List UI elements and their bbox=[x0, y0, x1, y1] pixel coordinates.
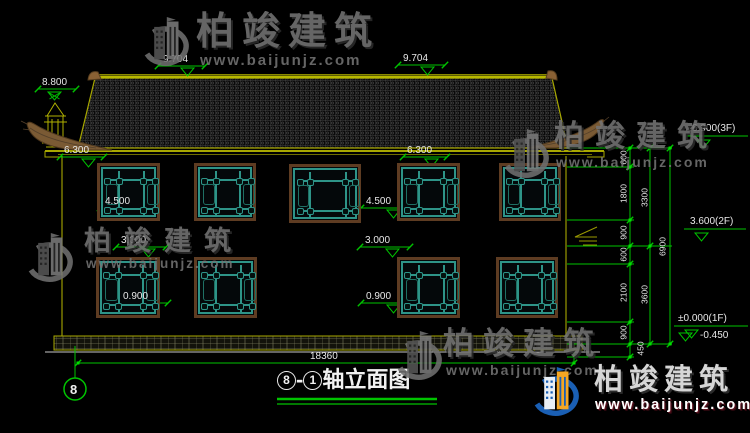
dim-node bbox=[629, 356, 632, 359]
watermark-bottom-right: 柏竣建筑 www.baijunjz.com bbox=[528, 364, 750, 413]
lattice-bar bbox=[105, 208, 156, 210]
lattice-rosette bbox=[440, 272, 447, 279]
elevation-label-sill_2f: 4.500 bbox=[105, 197, 130, 207]
lattice-rosette bbox=[503, 303, 510, 310]
lattice-rosette bbox=[116, 207, 123, 214]
lattice-panel bbox=[147, 184, 159, 205]
lattice-rosette bbox=[115, 272, 122, 279]
window-lattice bbox=[401, 167, 456, 217]
lattice-rosette bbox=[541, 207, 548, 214]
watermark-site: www.baijunjz.com bbox=[595, 397, 750, 413]
lattice-rosette bbox=[416, 303, 423, 310]
chain-segment-label: 900 bbox=[620, 316, 629, 350]
lattice-rosette bbox=[342, 208, 349, 215]
brand-logo-glyph bbox=[528, 364, 582, 424]
lattice-rosette bbox=[201, 303, 208, 310]
chain-segment-label: 2100 bbox=[620, 276, 629, 310]
lattice-bar bbox=[504, 304, 554, 306]
floor-mark-f2: 3.600(2F) bbox=[690, 217, 733, 227]
lattice-rosette bbox=[416, 207, 423, 214]
lattice-rosette bbox=[506, 207, 513, 214]
chain-total-label: 6900 bbox=[659, 230, 668, 264]
lattice-rosette bbox=[115, 303, 122, 310]
lattice-rosette bbox=[518, 207, 525, 214]
cad-line bbox=[82, 159, 95, 167]
lattice-rosette bbox=[352, 208, 359, 215]
elevation-label-head_1f: 3.000 bbox=[365, 236, 390, 246]
lattice-rosette bbox=[236, 178, 243, 185]
lattice-rosette bbox=[213, 207, 220, 214]
lattice-panel bbox=[298, 185, 309, 207]
lattice-window bbox=[397, 257, 460, 318]
lattice-rosette bbox=[538, 272, 545, 279]
lattice-rosette bbox=[237, 272, 244, 279]
dim-node bbox=[629, 321, 632, 324]
lattice-rosette bbox=[440, 207, 447, 214]
total-width-label: 18360 bbox=[310, 352, 338, 362]
dim-node bbox=[77, 362, 80, 365]
roof-tiles bbox=[78, 78, 568, 148]
lattice-rosette bbox=[515, 303, 522, 310]
window-lattice bbox=[500, 261, 554, 314]
cad-line bbox=[386, 249, 399, 257]
elevation-label-sill_1f: 0.900 bbox=[123, 292, 148, 302]
lattice-rosette bbox=[248, 207, 255, 214]
lattice-window bbox=[397, 163, 460, 221]
cad-line bbox=[546, 71, 557, 80]
brand-logo-glyph bbox=[138, 14, 192, 74]
cad-line bbox=[695, 233, 708, 241]
lattice-rosette bbox=[103, 303, 110, 310]
title-axis-from: 8 bbox=[277, 371, 296, 390]
elevation-drawing: 9.7049.7048.8006.3006.3004.5004.5003.000… bbox=[0, 0, 750, 433]
lattice-rosette bbox=[213, 272, 220, 279]
lattice-panel bbox=[243, 184, 255, 205]
axis-bubble-label: 8 bbox=[70, 382, 77, 397]
lattice-rosette bbox=[236, 207, 243, 214]
brand-logo-icon bbox=[138, 14, 192, 79]
brand-logo-glyph bbox=[498, 126, 552, 186]
lattice-window bbox=[194, 163, 256, 221]
lattice-bar bbox=[507, 208, 557, 210]
lattice-panel bbox=[406, 279, 418, 302]
brand-logo-glyph bbox=[22, 230, 76, 290]
watermark-brand: 柏竣建筑 bbox=[443, 326, 603, 362]
chain-segment-label: 1800 bbox=[620, 177, 629, 211]
lattice-rosette bbox=[416, 272, 423, 279]
lattice-bar bbox=[405, 304, 456, 306]
dim-node bbox=[629, 263, 632, 266]
chain-segment-label: 450 bbox=[637, 332, 646, 366]
brand-logo-glyph bbox=[391, 328, 445, 388]
lattice-panel bbox=[545, 279, 557, 302]
lattice-rosette bbox=[404, 207, 411, 214]
lattice-rosette bbox=[140, 207, 147, 214]
lattice-window bbox=[496, 257, 558, 318]
lattice-rosette bbox=[440, 178, 447, 185]
lattice-rosette bbox=[140, 178, 147, 185]
lattice-rosette bbox=[440, 303, 447, 310]
lattice-bar bbox=[202, 208, 252, 210]
elevation-label-eave: 6.300 bbox=[407, 146, 432, 156]
lattice-bar bbox=[104, 274, 156, 276]
lattice-rosette bbox=[452, 303, 459, 310]
dim-node bbox=[649, 343, 652, 346]
lattice-bar bbox=[202, 304, 253, 306]
lattice-panel bbox=[244, 279, 256, 302]
lattice-rosette bbox=[116, 178, 123, 185]
lattice-panel bbox=[146, 279, 159, 302]
watermark-brand: 柏竣建筑 bbox=[84, 226, 244, 256]
brand-logo-icon bbox=[391, 328, 445, 393]
lattice-panel bbox=[203, 279, 215, 302]
lattice-rosette bbox=[201, 207, 208, 214]
window-lattice bbox=[293, 168, 357, 219]
lattice-rosette bbox=[297, 208, 304, 215]
lattice-rosette bbox=[104, 207, 111, 214]
lattice-rosette bbox=[213, 303, 220, 310]
elevation-label-ridge: 9.704 bbox=[403, 54, 428, 64]
lattice-bar bbox=[405, 274, 456, 276]
lattice-bar bbox=[105, 179, 156, 181]
lattice-rosette bbox=[140, 303, 147, 310]
dim-node bbox=[629, 219, 632, 222]
lattice-rosette bbox=[249, 303, 256, 310]
watermark-site: www.baijunjz.com bbox=[200, 52, 380, 69]
elevation-label-sill_1f: 0.900 bbox=[366, 292, 391, 302]
lattice-rosette bbox=[404, 303, 411, 310]
lattice-bar bbox=[405, 208, 456, 210]
lattice-window bbox=[289, 164, 361, 223]
lattice-rosette bbox=[416, 178, 423, 185]
lattice-window bbox=[97, 163, 160, 221]
dim-node bbox=[649, 245, 652, 248]
elevation-label-sill_2f: 4.500 bbox=[366, 197, 391, 207]
lattice-panel bbox=[406, 184, 418, 205]
lattice-bar bbox=[202, 179, 252, 181]
watermark-site: www.baijunjz.com bbox=[86, 256, 244, 271]
lattice-rosette bbox=[307, 208, 314, 215]
chain-sum-label: 3300 bbox=[641, 181, 650, 215]
lattice-rosette bbox=[550, 303, 557, 310]
lattice-panel bbox=[203, 184, 215, 205]
lattice-rosette bbox=[515, 272, 522, 279]
lattice-rosette bbox=[152, 207, 159, 214]
dim-node bbox=[629, 245, 632, 248]
lattice-bar bbox=[104, 304, 156, 306]
window-lattice bbox=[101, 167, 156, 217]
lattice-rosette bbox=[213, 178, 220, 185]
lattice-rosette bbox=[538, 303, 545, 310]
cad-line bbox=[421, 67, 434, 75]
dim-node bbox=[669, 343, 672, 346]
cad-line bbox=[575, 227, 597, 245]
window-lattice bbox=[198, 167, 252, 217]
floor-mark-ground: -0.450 bbox=[700, 331, 728, 341]
brand-logo-icon bbox=[498, 126, 552, 191]
lattice-bar bbox=[504, 274, 554, 276]
elevation-label-eave: 6.300 bbox=[64, 146, 89, 156]
lattice-panel bbox=[447, 184, 459, 205]
lattice-rosette bbox=[553, 207, 560, 214]
chain-sum-label: 3600 bbox=[641, 278, 650, 312]
lattice-panel bbox=[105, 279, 118, 302]
lattice-panel bbox=[447, 279, 459, 302]
lattice-rosette bbox=[152, 303, 159, 310]
chain-segment-label: 600 bbox=[620, 238, 629, 272]
title-axis-to: 1 bbox=[303, 371, 322, 390]
lattice-bar bbox=[405, 179, 456, 181]
dim-node bbox=[629, 343, 632, 346]
brand-logo-icon bbox=[22, 230, 76, 295]
watermark-brand: 柏竣建筑 bbox=[196, 12, 380, 52]
lattice-rosette bbox=[452, 207, 459, 214]
watermark-top: 柏竣建筑 www.baijunjz.com bbox=[138, 12, 380, 69]
lattice-rosette bbox=[237, 303, 244, 310]
watermark-site: www.baijunjz.com bbox=[556, 154, 718, 170]
brand-logo-color-icon bbox=[528, 364, 582, 429]
lattice-panel bbox=[505, 279, 517, 302]
watermark-right: 柏竣建筑 www.baijunjz.com bbox=[498, 120, 718, 170]
watermark-brand: 柏竣建筑 bbox=[554, 120, 718, 154]
lattice-rosette bbox=[342, 179, 349, 186]
window-lattice bbox=[401, 261, 456, 314]
watermark-left: 柏竣建筑 www.baijunjz.com bbox=[22, 226, 244, 271]
elevation-label-finial: 8.800 bbox=[42, 78, 67, 88]
floor-mark-f1: ±0.000(1F) bbox=[678, 314, 727, 324]
lattice-rosette bbox=[140, 272, 147, 279]
title-dash: - bbox=[296, 367, 303, 392]
lattice-bar bbox=[202, 274, 253, 276]
cad-line bbox=[88, 72, 101, 80]
lattice-panel bbox=[349, 185, 360, 207]
watermark-brand: 柏竣建筑 bbox=[594, 364, 750, 397]
